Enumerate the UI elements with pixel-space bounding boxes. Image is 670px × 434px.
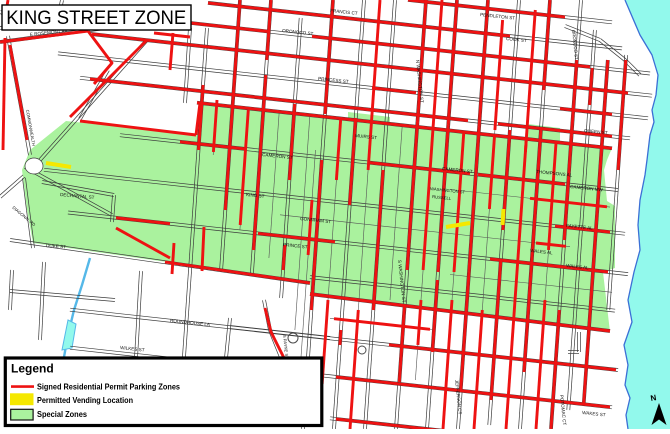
svg-text:Permitted Vending Location: Permitted Vending Location xyxy=(37,395,133,405)
svg-text:Special Zones: Special Zones xyxy=(37,409,87,419)
svg-text:Signed Residential Permit Park: Signed Residential Permit Parking Zones xyxy=(37,382,180,392)
svg-text:KING STREET ZONE: KING STREET ZONE xyxy=(6,8,186,29)
svg-text:Legend: Legend xyxy=(11,362,54,376)
